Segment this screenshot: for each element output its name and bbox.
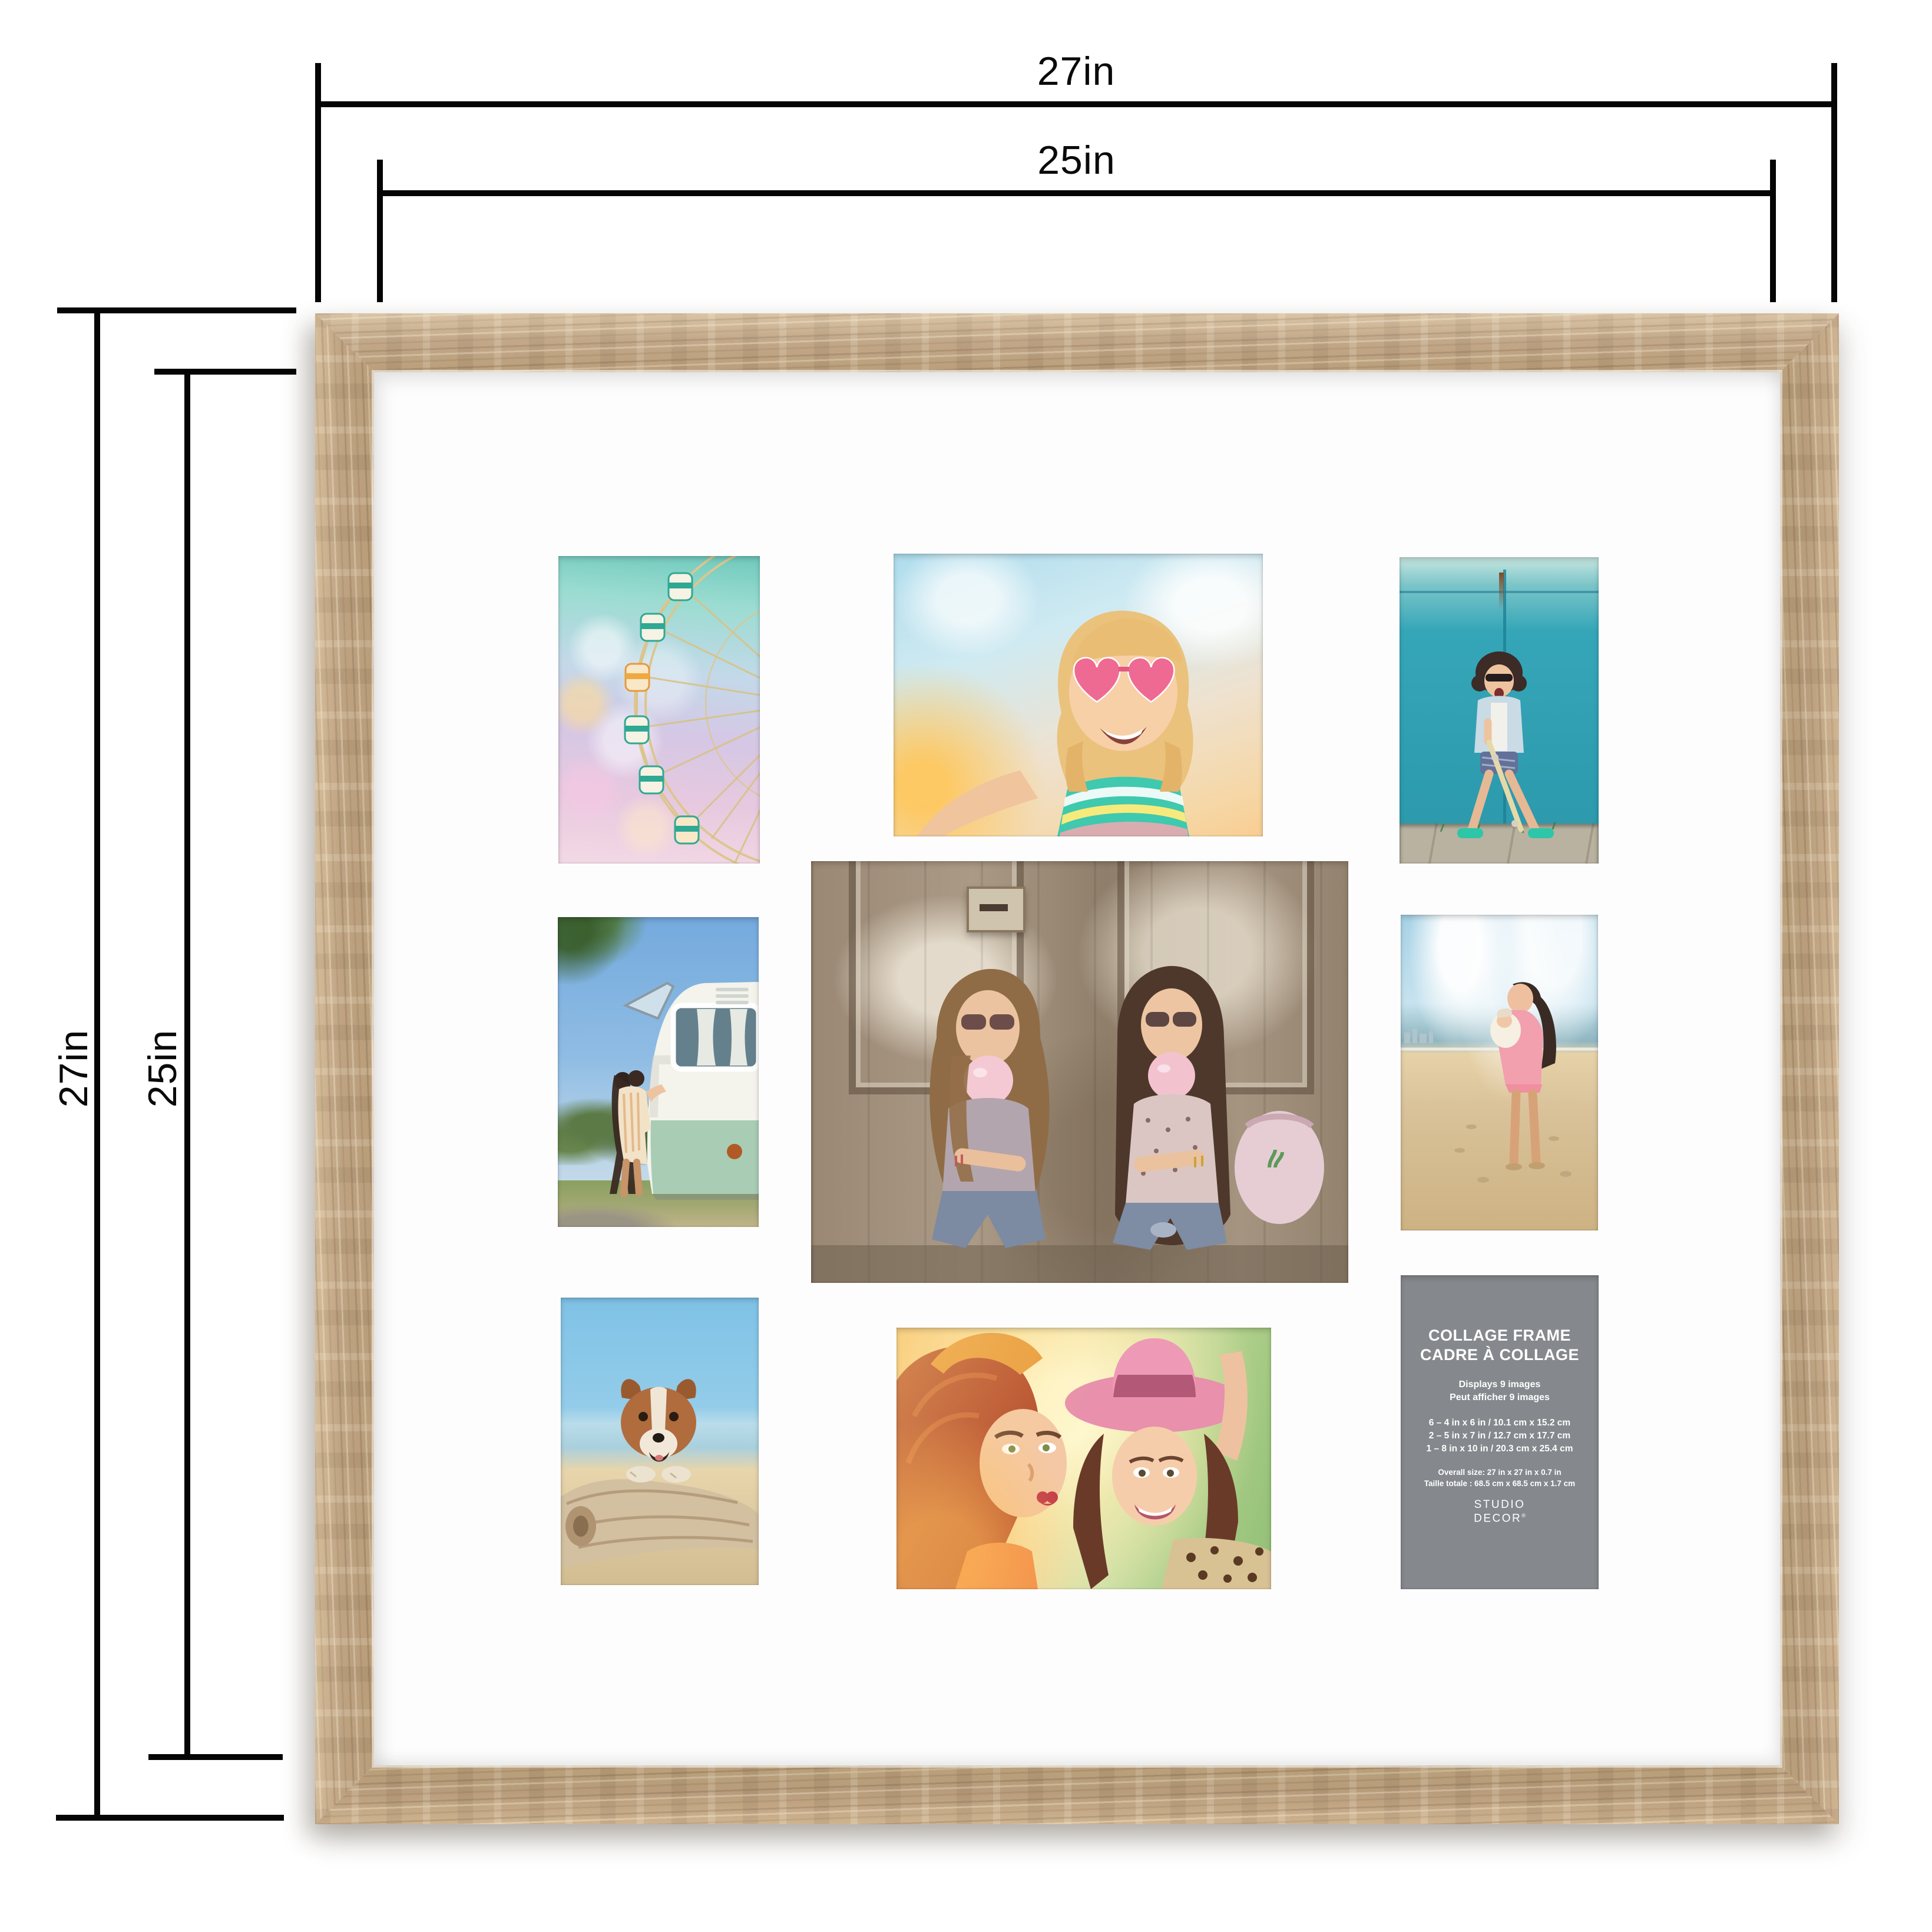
info-card: COLLAGE FRAME CADRE À COLLAGE Displays 9…: [1401, 1275, 1599, 1589]
photo-camper-couple: [558, 917, 759, 1227]
frame-top-rail: [315, 313, 1839, 372]
photo-ferris-wheel: [558, 556, 760, 864]
dim-tick-left-outer-top: [57, 307, 296, 313]
frame-right-rail: [1780, 313, 1839, 1824]
frame-left-rail: [315, 313, 374, 1824]
skater-illustration: [1400, 557, 1599, 864]
card-overall-fr: Taille totale : 68.5 cm x 68.5 cm x 1.7 …: [1424, 1478, 1575, 1489]
ferris-wheel-illustration: [558, 556, 760, 864]
girl-selfie-illustration: [894, 554, 1263, 836]
bubblegum-friends-illustration: [811, 861, 1348, 1283]
camper-illustration: [558, 917, 759, 1227]
dim-label-top-inner: 25in: [377, 137, 1776, 183]
dog-driftwood-illustration: [561, 1298, 759, 1585]
card-size-line-3: 1 – 8 in x 10 in / 20.3 cm x 25.4 cm: [1426, 1443, 1573, 1455]
photo-skater-teal-wall: [1400, 557, 1599, 864]
brand-line-decor: DECOR: [1474, 1512, 1521, 1524]
dim-tick-top-outer-left: [315, 63, 321, 302]
card-size-line-1: 6 – 4 in x 6 in / 10.1 cm x 15.2 cm: [1426, 1417, 1573, 1430]
registered-mark: ®: [1521, 1513, 1526, 1519]
pink-hat-selfie-illustration: [896, 1328, 1271, 1589]
dim-tick-left-outer-bottom: [56, 1815, 284, 1821]
info-card-content: COLLAGE FRAME CADRE À COLLAGE Displays 9…: [1401, 1275, 1599, 1589]
photo-bubblegum-friends: [811, 861, 1348, 1283]
product-diagram-canvas: 27in 25in 27in 25in: [0, 0, 1932, 1932]
dim-tick-top-outer-right: [1831, 63, 1837, 302]
dim-tick-left-inner-top: [154, 369, 296, 375]
dim-line-top-outer: [315, 101, 1837, 107]
photo-girl-selfie: [894, 554, 1263, 836]
frame-bottom-rail: [315, 1765, 1839, 1824]
photo-dog-driftwood: [561, 1298, 759, 1585]
card-size-line-2: 2 – 5 in x 7 in / 12.7 cm x 17.7 cm: [1426, 1430, 1573, 1443]
collage-frame: COLLAGE FRAME CADRE À COLLAGE Displays 9…: [315, 313, 1839, 1824]
photo-beach-mother-child: [1401, 915, 1598, 1230]
mat-board: COLLAGE FRAME CADRE À COLLAGE Displays 9…: [374, 372, 1780, 1765]
dim-label-left-outer: 27in: [51, 1010, 97, 1127]
photo-pink-hat-selfie: [896, 1328, 1271, 1589]
card-title-en: COLLAGE FRAME: [1420, 1326, 1579, 1345]
card-subtitle-en: Displays 9 images: [1450, 1378, 1550, 1391]
card-title-fr: CADRE À COLLAGE: [1420, 1345, 1579, 1365]
dim-tick-left-inner-bottom: [148, 1754, 283, 1760]
dim-line-top-inner: [377, 190, 1776, 196]
beach-mother-illustration: [1401, 915, 1598, 1230]
studio-decor-logo: STUDIO DECOR®: [1474, 1500, 1526, 1524]
card-overall-en: Overall size: 27 in x 27 in x 0.7 in: [1424, 1467, 1575, 1478]
card-subtitle-fr: Peut afficher 9 images: [1450, 1391, 1550, 1404]
brand-line-studio: STUDIO: [1474, 1500, 1526, 1510]
dim-label-top-outer: 27in: [315, 48, 1837, 94]
dim-label-left-inner: 25in: [140, 1010, 186, 1127]
